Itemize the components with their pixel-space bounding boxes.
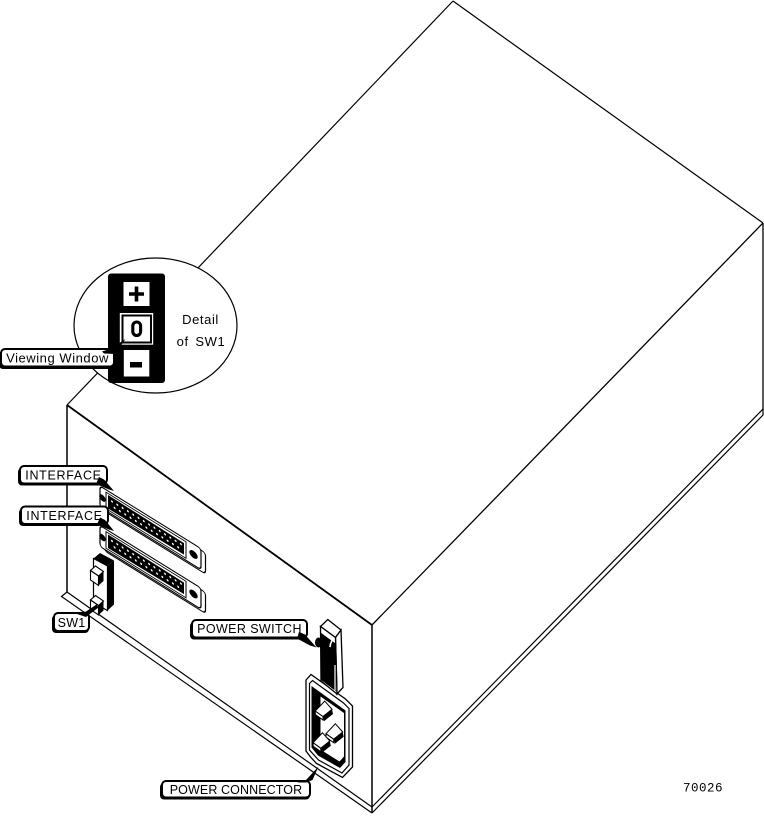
- svg-text:INTERFACE: INTERFACE: [25, 469, 101, 483]
- svg-text:POWER CONNECTOR: POWER CONNECTOR: [170, 783, 303, 797]
- svg-text:SW1: SW1: [58, 616, 86, 630]
- svg-text:Viewing Window: Viewing Window: [6, 351, 109, 366]
- svg-text:of SW1: of SW1: [177, 334, 226, 349]
- svg-text:Detail: Detail: [182, 312, 219, 327]
- svg-text:INTERFACE: INTERFACE: [26, 509, 102, 523]
- svg-text:POWER SWITCH: POWER SWITCH: [197, 622, 302, 636]
- svg-text:70026: 70026: [683, 782, 723, 796]
